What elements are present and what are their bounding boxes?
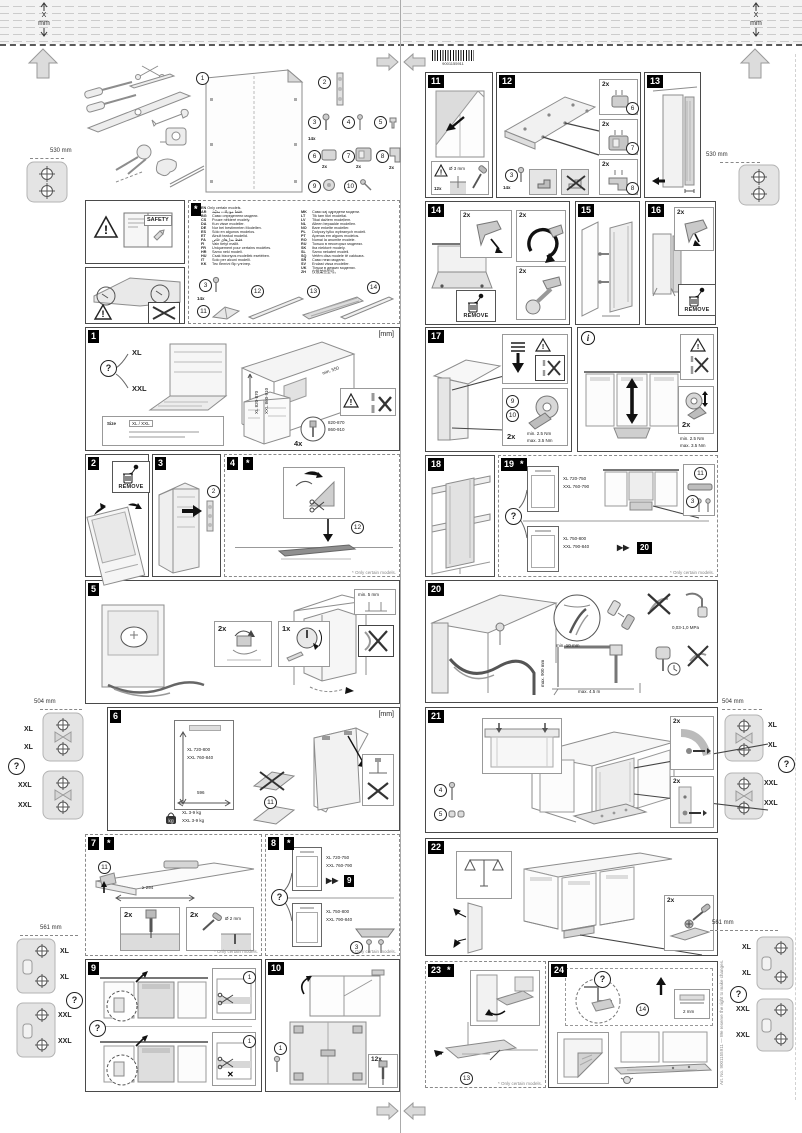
language-list: EN Only certain models. ARفقط موديلات مع…: [201, 206, 401, 274]
part-ref: 8: [626, 182, 639, 195]
x-mark-icon: [686, 354, 710, 376]
door-variant-bottom: [292, 903, 322, 947]
x-mark-icon: [365, 391, 393, 415]
panel-step-10: 10 1 12x: [265, 959, 400, 1092]
qty-2x: 2x: [519, 269, 526, 276]
step-badge: 16: [648, 204, 664, 217]
template-530-label-right: 530 mm: [706, 152, 728, 158]
safety-booklet-panel: ! SAFETY: [85, 200, 185, 264]
part-ref-7: 7: [342, 150, 355, 163]
panel-step-16: 16 2x REMOVE: [645, 201, 716, 325]
torque-min: min. 2.5 Nm: [527, 431, 551, 436]
part-ref: 3: [505, 169, 518, 182]
door-width: 596: [197, 790, 205, 795]
kitchen-run-sketch-bottom: [100, 1034, 208, 1086]
size-label: Size: [107, 421, 116, 426]
folded-template-icon: [211, 303, 241, 321]
panel-step-12: 12 2x 6 2x 7 2x 8 3 14x: [496, 72, 641, 198]
corner-seal-sketch: [558, 1033, 608, 1083]
step-badge: 21: [428, 710, 444, 723]
only-models-footnote: * Only certain models.: [498, 1081, 542, 1086]
part-ref: 11: [197, 305, 210, 318]
x-mark-icon: [644, 591, 674, 617]
x-mark-icon: [538, 358, 562, 378]
screwdriver-icon: [470, 166, 488, 192]
qty-12x: 12x: [434, 186, 442, 191]
furniture-door-front: XL 720-800 XXL 760-840 596: [174, 720, 234, 810]
weight-xl: XL 3-9 kg: [182, 810, 201, 815]
plinth-install-sketch: [432, 1020, 542, 1084]
part-ref: 4: [434, 784, 447, 797]
warning-inset: !: [340, 388, 396, 416]
panel-step-7: 7 * 11 ≥ 294 2x 2x Ø 2 mm * Only certain…: [85, 834, 262, 956]
part-ref: 3: [199, 279, 212, 292]
cut-strip-inset: [283, 467, 345, 519]
part-ref: 10: [506, 409, 519, 422]
instruction-sheet: X mm X mm 530 mm 504 mm XL XL ? XXL XXL: [0, 0, 802, 1133]
panel-step-13: 13: [644, 72, 701, 198]
cap-2x-inset: 2x: [214, 621, 272, 667]
door-align-sketch: [438, 901, 508, 953]
plinth-clip-inset: [470, 970, 540, 1026]
xxl-label: XXL: [764, 780, 778, 788]
tools-illustration: [70, 62, 212, 198]
step-badge: 4: [227, 457, 238, 470]
mm-unit-tag: [mm]: [378, 711, 394, 718]
x-mark-icon: [151, 305, 177, 321]
variant-bottom-xxl: XXL 790-840: [326, 917, 352, 922]
step-badge: 23: [428, 964, 444, 977]
hose-routing-sketch: [430, 589, 558, 699]
min-gap-inset: min. 5 mm: [354, 589, 396, 615]
question-circle: ?: [271, 889, 288, 906]
hinge-torque-inset: 9 10 2x min. 2.5 Nm max. 3.5 Nm: [502, 388, 568, 446]
gap-sketch: [363, 600, 389, 613]
remove-hinges-icon: REMOVE: [456, 290, 496, 322]
qty-2x: 2x: [667, 898, 674, 905]
trash-person-icon: [466, 293, 486, 313]
adjust-screw-inset: 2x: [664, 895, 714, 951]
xxl-label: XXL: [18, 802, 32, 810]
part-ref-9: 9: [308, 180, 321, 193]
step-badge: 1: [88, 330, 99, 343]
panel-step-21: 21 4 5 2x: [425, 707, 718, 833]
panel-step-19: 19 * ? XL 720-750 XXL 760-790 11 3 XL 75…: [498, 455, 718, 577]
handle-dim-arrow: [114, 893, 198, 903]
hinge-lever-sketch: [471, 219, 509, 257]
panel-step-20: 20 min. 10 mm 0,03-1,0 MPa: [425, 580, 718, 703]
part-9-icon: [322, 178, 336, 192]
remove-icon: REMOVE: [678, 284, 716, 316]
part-ref-2: 2: [318, 76, 331, 89]
warning-triangle-icon: !: [94, 304, 112, 321]
warning-triangle-icon: !: [434, 164, 448, 177]
qty-2x: 2x: [682, 421, 690, 429]
drill-template-504-xl-left: [42, 712, 84, 762]
barcode-bars: [432, 50, 474, 61]
remove-label: REMOVE: [114, 485, 148, 491]
torque-max: max. 3.5 Nm: [527, 438, 553, 443]
screwdriver-icon: [199, 912, 223, 932]
step-badge: 22: [428, 841, 444, 854]
handle-profile-sketch: [354, 925, 396, 939]
question-circle: ?: [8, 758, 25, 775]
tilted-appliance-sketch: [88, 489, 148, 575]
part-6-icon: [321, 148, 337, 162]
xl-label: XL: [768, 722, 777, 730]
question-circle: ?: [778, 756, 795, 773]
size-value: XL / XXL: [129, 420, 153, 427]
arrow-down-small-icon: [742, 27, 770, 37]
fold-unit-label: mm: [30, 20, 58, 28]
xxl-label: XXL: [18, 782, 32, 790]
part-ref-6: 6: [308, 150, 321, 163]
fold-x-label: X: [742, 12, 770, 20]
drill-template-530-right: [738, 164, 780, 206]
balance-scale-icon: [457, 852, 511, 898]
rotate-hinge-inset: 2x: [516, 210, 566, 262]
xxl-option: XXL: [132, 384, 147, 393]
part-ref-4: 4: [342, 116, 355, 129]
barcode: 9001155911: [432, 50, 474, 66]
part-6-qty: 2x: [322, 164, 327, 169]
language-row: KKТек белгілі бір үлгілер.: [201, 262, 296, 266]
part-3-screw-icon: [322, 114, 330, 132]
drill-template-561-xxl-right: [756, 998, 794, 1052]
drill-template-561-xxl-left: [16, 1002, 56, 1058]
hinge-inset: 2x: [460, 210, 512, 258]
drill-template-504-xl-right: [724, 714, 764, 762]
only-models-footnote: * Only certain models.: [352, 570, 396, 575]
long-screw-icon: [448, 782, 456, 802]
panel-step-15: 15: [575, 201, 640, 325]
panel-iso-sketch: [503, 91, 597, 163]
svg-text:kg: kg: [168, 819, 174, 825]
part-ref: 1: [243, 971, 256, 984]
svg-text:!: !: [542, 344, 544, 351]
warning-triangle-icon: !: [94, 215, 118, 239]
part-ref-1: 1: [196, 72, 209, 85]
cut-line: [0, 44, 802, 46]
hinge-mechanism-sketch: [521, 393, 565, 429]
cabinet-height-adjust-sketch: [584, 364, 680, 444]
up-arrow-icon: [654, 977, 668, 997]
pilot-hole-inset: 2x Ø 2 mm: [186, 907, 254, 951]
drill-diameter-label: Ø 2 mm: [225, 916, 241, 921]
bracket-wrong-box: [561, 169, 589, 195]
do-not-kink-icon: [358, 625, 394, 657]
step-badge: 13: [647, 75, 663, 88]
door-variant-bottom: [527, 526, 559, 572]
door-variant-top: [527, 466, 559, 512]
step-badge: 6: [110, 710, 121, 723]
hose-couplings-icon: [606, 597, 640, 637]
x-mark-icon: [684, 643, 712, 669]
question-circle: ?: [594, 971, 611, 988]
kitchen-run-sketch-top: [100, 970, 208, 1022]
handle-dim-label: ≥ 294: [142, 885, 153, 890]
part-ref: 12: [351, 521, 364, 534]
strip-on-counter-sketch: [275, 541, 365, 563]
bracket-screwing-sketch: [677, 727, 711, 767]
remove-label: REMOVE: [680, 308, 714, 314]
fold-together-arrows-bottom: [376, 1102, 426, 1120]
step-badge: 18: [428, 458, 444, 471]
panel-step-9: 9 ? 1: [85, 959, 262, 1092]
hook-screw-ok: [363, 755, 393, 779]
appliance-in-niche-sketch: [430, 350, 502, 446]
bracket-ok-box: [529, 169, 557, 195]
svg-text:!: !: [350, 398, 353, 407]
bracket-icon: [536, 176, 552, 190]
screw-icon: [517, 167, 525, 183]
fold-together-arrows-top: [376, 53, 426, 71]
qty-2x: 2x: [507, 433, 515, 441]
skip-to-step-badge: 20: [637, 542, 652, 554]
question-circle: ?: [100, 360, 117, 377]
part-ref-8: 8: [376, 150, 389, 163]
part-3-qty: 14x: [308, 136, 316, 141]
xl-label: XL: [24, 744, 33, 752]
qty-12x: 12x: [371, 1057, 382, 1064]
vertical-dim-arrow: [179, 731, 187, 805]
panel-step-8: 8 * ? XL 720-750 XXL 760-790 ▶▶ 9 XL 750…: [265, 834, 400, 956]
hinge-refit-inset: 2x: [674, 207, 714, 251]
arrow-up-small-icon: [30, 2, 58, 12]
qty-1x: 1x: [282, 625, 290, 633]
plinth-strip-sketch: [613, 1030, 713, 1086]
door-marking-sketch: [296, 968, 392, 1018]
screw-qty: 4x: [294, 440, 302, 448]
screw-icon: [212, 277, 220, 293]
warning-inset: !: [680, 334, 714, 380]
svg-text:✕: ✕: [227, 1070, 234, 1079]
door-on-rails-sketch: [430, 470, 492, 574]
part-ref: 5: [434, 808, 447, 821]
panel-step-3: 3 2: [152, 454, 221, 577]
part-2-icon: [334, 72, 346, 106]
drill-template-561-xl-right: [756, 936, 794, 990]
no-template-sheet-icon: [250, 766, 298, 792]
panel-to-frame-sketch: [580, 216, 636, 322]
optional-star-badge: *: [104, 837, 114, 850]
drill-template-504-xxl-left: [42, 770, 84, 820]
panel-step-6: 6 [mm] XL 720-800 XXL 760-840 596 kg XL …: [107, 707, 400, 831]
question-circle: ?: [66, 992, 83, 1009]
part-ref: 1: [243, 1035, 256, 1048]
cabinet-row-sketch: [522, 847, 674, 943]
pressure-range-label: 0,03-1,0 MPa: [672, 625, 699, 630]
leader-arrow: [321, 517, 335, 543]
x-mark-icon: [361, 628, 391, 654]
side-screwing-sketch: [677, 785, 711, 825]
xl-label: XL: [24, 726, 33, 734]
press-warning-inset: !: [502, 334, 568, 384]
weight-icon: kg: [164, 810, 178, 826]
fitting-inset-a: 2x 6: [599, 79, 638, 115]
top-fold-band: [0, 0, 802, 44]
remove-packaging-icon: REMOVE: [112, 461, 150, 493]
step-badge: 24: [551, 964, 567, 977]
part-ref-3: 3: [308, 116, 321, 129]
screw-icon: [272, 1056, 282, 1074]
press-down-icon: [507, 339, 529, 379]
appliance-rear-hoses-sketch: [94, 597, 210, 699]
screw-dim-b: 860-910: [328, 427, 345, 432]
qty-2x: 2x: [519, 213, 526, 220]
variant-top-xxl: XXL 760-790: [563, 484, 589, 489]
divider: [100, 1026, 252, 1027]
hand-scissors-sketch: [284, 468, 344, 518]
barcode-number: 9001155911: [432, 61, 474, 66]
fitting-inset-c: 2x 8: [599, 159, 638, 195]
template-561-label-left: 561 mm: [40, 925, 62, 931]
xl-label: XL: [60, 974, 69, 982]
screw-qty: 14x: [503, 185, 511, 190]
drill-inset: 2x: [120, 907, 180, 951]
gap-label: 2 mm: [683, 1009, 694, 1014]
hole-depth-sketch: [221, 926, 251, 950]
hole-min-label: min. 10 mm: [556, 643, 580, 648]
cover-caps-icon: [448, 808, 466, 820]
panel-step-24: 24 ? 14 2 mm: [548, 961, 718, 1088]
weight-xxl: XXL 3-9 kg: [182, 818, 204, 823]
hook-ok-no-inset: [362, 754, 394, 806]
part-7-icon: [355, 146, 373, 163]
fitting-inset-b: 2x 7: [599, 119, 638, 155]
side-imprint: Art. No. 9001155911 — We reserve the rig…: [719, 900, 724, 1085]
rotate-arrow-sketch: [521, 219, 563, 261]
step-badge: 12: [499, 75, 515, 88]
part-ref-5: 5: [374, 116, 387, 129]
alignment-scale-inset: [456, 851, 512, 899]
info-badge: i: [581, 331, 595, 345]
step-badge: 20: [428, 583, 444, 596]
qty-2x: 2x: [218, 625, 226, 633]
optional-star-badge: *: [517, 458, 527, 471]
drill-warning-inset: ! Ø 3 mm 12x: [431, 161, 489, 195]
only-models-footnote: * Only certain models.: [352, 949, 396, 954]
panel-step-18: 18: [425, 455, 495, 577]
optional-star-badge: *: [444, 964, 454, 977]
panel-step-17: 17 ! 9 10 2x min. 2.5 Nm max. 3.5 Nm: [425, 327, 572, 452]
language-column-left: ARفقط موديلات معيّنة. BGСамо определени …: [201, 210, 296, 274]
warning-triangle-icon: !: [343, 393, 359, 408]
xl-label: XL: [60, 948, 69, 956]
dial-1x-inset: 1x: [278, 621, 330, 667]
part-ref: 11: [694, 467, 707, 480]
hole-detail-circle: [552, 593, 602, 643]
variant-top-xl: XL 720-750: [326, 855, 349, 860]
fold-height-marker-left: X mm: [30, 2, 58, 37]
top-fixing-inset: [482, 718, 562, 774]
step-badge: 14: [428, 204, 444, 217]
xxl-label: XXL: [736, 1006, 750, 1014]
variant-top-xl: XL 720-750: [563, 476, 586, 481]
part-ref: 2: [207, 485, 220, 498]
drill-template-504-xxl-right: [724, 772, 764, 820]
screw-dim-a: 820-870: [328, 420, 345, 425]
transport-warning-panel: !: [85, 267, 185, 324]
variant-bottom-xxl: XXL 790-840: [563, 544, 589, 549]
width-dim-arrow: [177, 799, 231, 807]
warning-triangle-icon: !: [535, 338, 551, 352]
question-circle: ?: [89, 1020, 106, 1037]
question-circle: ?: [505, 508, 522, 525]
variant-top-xxl: XXL 760-790: [326, 863, 352, 868]
no-cut-plug-icon: [684, 643, 712, 669]
screw-qty: 14x: [197, 296, 205, 301]
variant-bottom-xl: XL 750-800: [563, 536, 586, 541]
part-2-strip-icon: [205, 499, 215, 533]
remove-label: REMOVE: [458, 314, 494, 320]
panel-step-23: 23 * 13 * Only certain models.: [425, 961, 546, 1088]
right-edge-dashed-line: [795, 54, 796, 1100]
step-badge: 10: [268, 962, 284, 975]
counter-underside-sketch: [483, 719, 561, 773]
torque-max: max. 3.5 Nm: [680, 443, 706, 448]
language-column-right: MKСамо кај одредени модели. LTTik tam ti…: [301, 210, 396, 274]
only-models-footnote: * Only certain models.: [670, 570, 714, 575]
part-ref: 7: [626, 142, 639, 155]
door-dim-xxl: XXL 760-840: [187, 755, 213, 760]
leader: [30, 158, 64, 159]
xl-label: XL: [742, 970, 751, 978]
panel-step-14: 14 2x 2x 2x REMOV: [425, 201, 570, 325]
hole-depth-sketch: [450, 174, 466, 194]
screw-adjust-sketch: [669, 906, 711, 948]
niche-dim-xl: XL 820-870: [254, 362, 259, 414]
leader: [722, 709, 762, 710]
qty-2x: 2x: [602, 162, 609, 169]
center-fold-line: [400, 0, 401, 1133]
language-note-panel: * EN Only certain models. ARفقط موديلات …: [188, 200, 400, 324]
qty-2x: 2x: [673, 719, 680, 726]
fold-height-marker-right: X mm: [742, 2, 770, 37]
fold-unit-label: mm: [742, 20, 770, 28]
do-not-icon: [148, 302, 180, 324]
optional-star-badge: *: [243, 457, 253, 470]
svg-text:!: !: [697, 344, 699, 351]
panel-step-1: 1 [mm] ? XL XXL Size XL / XXL XL 820-870…: [85, 327, 400, 451]
fold-up-block-arrow-right: [738, 48, 772, 80]
leader: [20, 935, 78, 936]
rail-part-icon: [339, 291, 397, 321]
template-on-door-sketch: [434, 89, 486, 159]
wrench-hinge-inset: 2x: [516, 266, 566, 320]
only-models-footnote: * Only certain models.: [214, 949, 258, 954]
no-extend-hose-icon: [644, 591, 674, 617]
svg-text:!: !: [440, 170, 442, 177]
panel-step-22: 22 2x: [425, 838, 718, 956]
panel-step-5: 5 2x 1x: [85, 580, 400, 704]
part-8-qty: 2x: [389, 165, 394, 170]
part-ref: 9: [506, 395, 519, 408]
skip-arrows: ▶▶: [326, 877, 338, 885]
appliance-corner-sketch: [157, 475, 201, 573]
safety-label: SAFETY: [144, 215, 172, 226]
part-4-screw-icon: [356, 114, 364, 132]
mm-unit-tag: [mm]: [378, 331, 394, 338]
qty-2x: 2x: [673, 779, 680, 786]
do-not-icon: [535, 355, 565, 381]
screw-circle-icon: [300, 416, 326, 442]
cut-template-inset-bottom: ✕ 1: [212, 1032, 256, 1086]
part-5-cap-icon: [388, 116, 398, 130]
gap-sketch: [679, 993, 705, 1007]
part-ref: 14: [367, 281, 380, 294]
leader: [720, 162, 760, 163]
